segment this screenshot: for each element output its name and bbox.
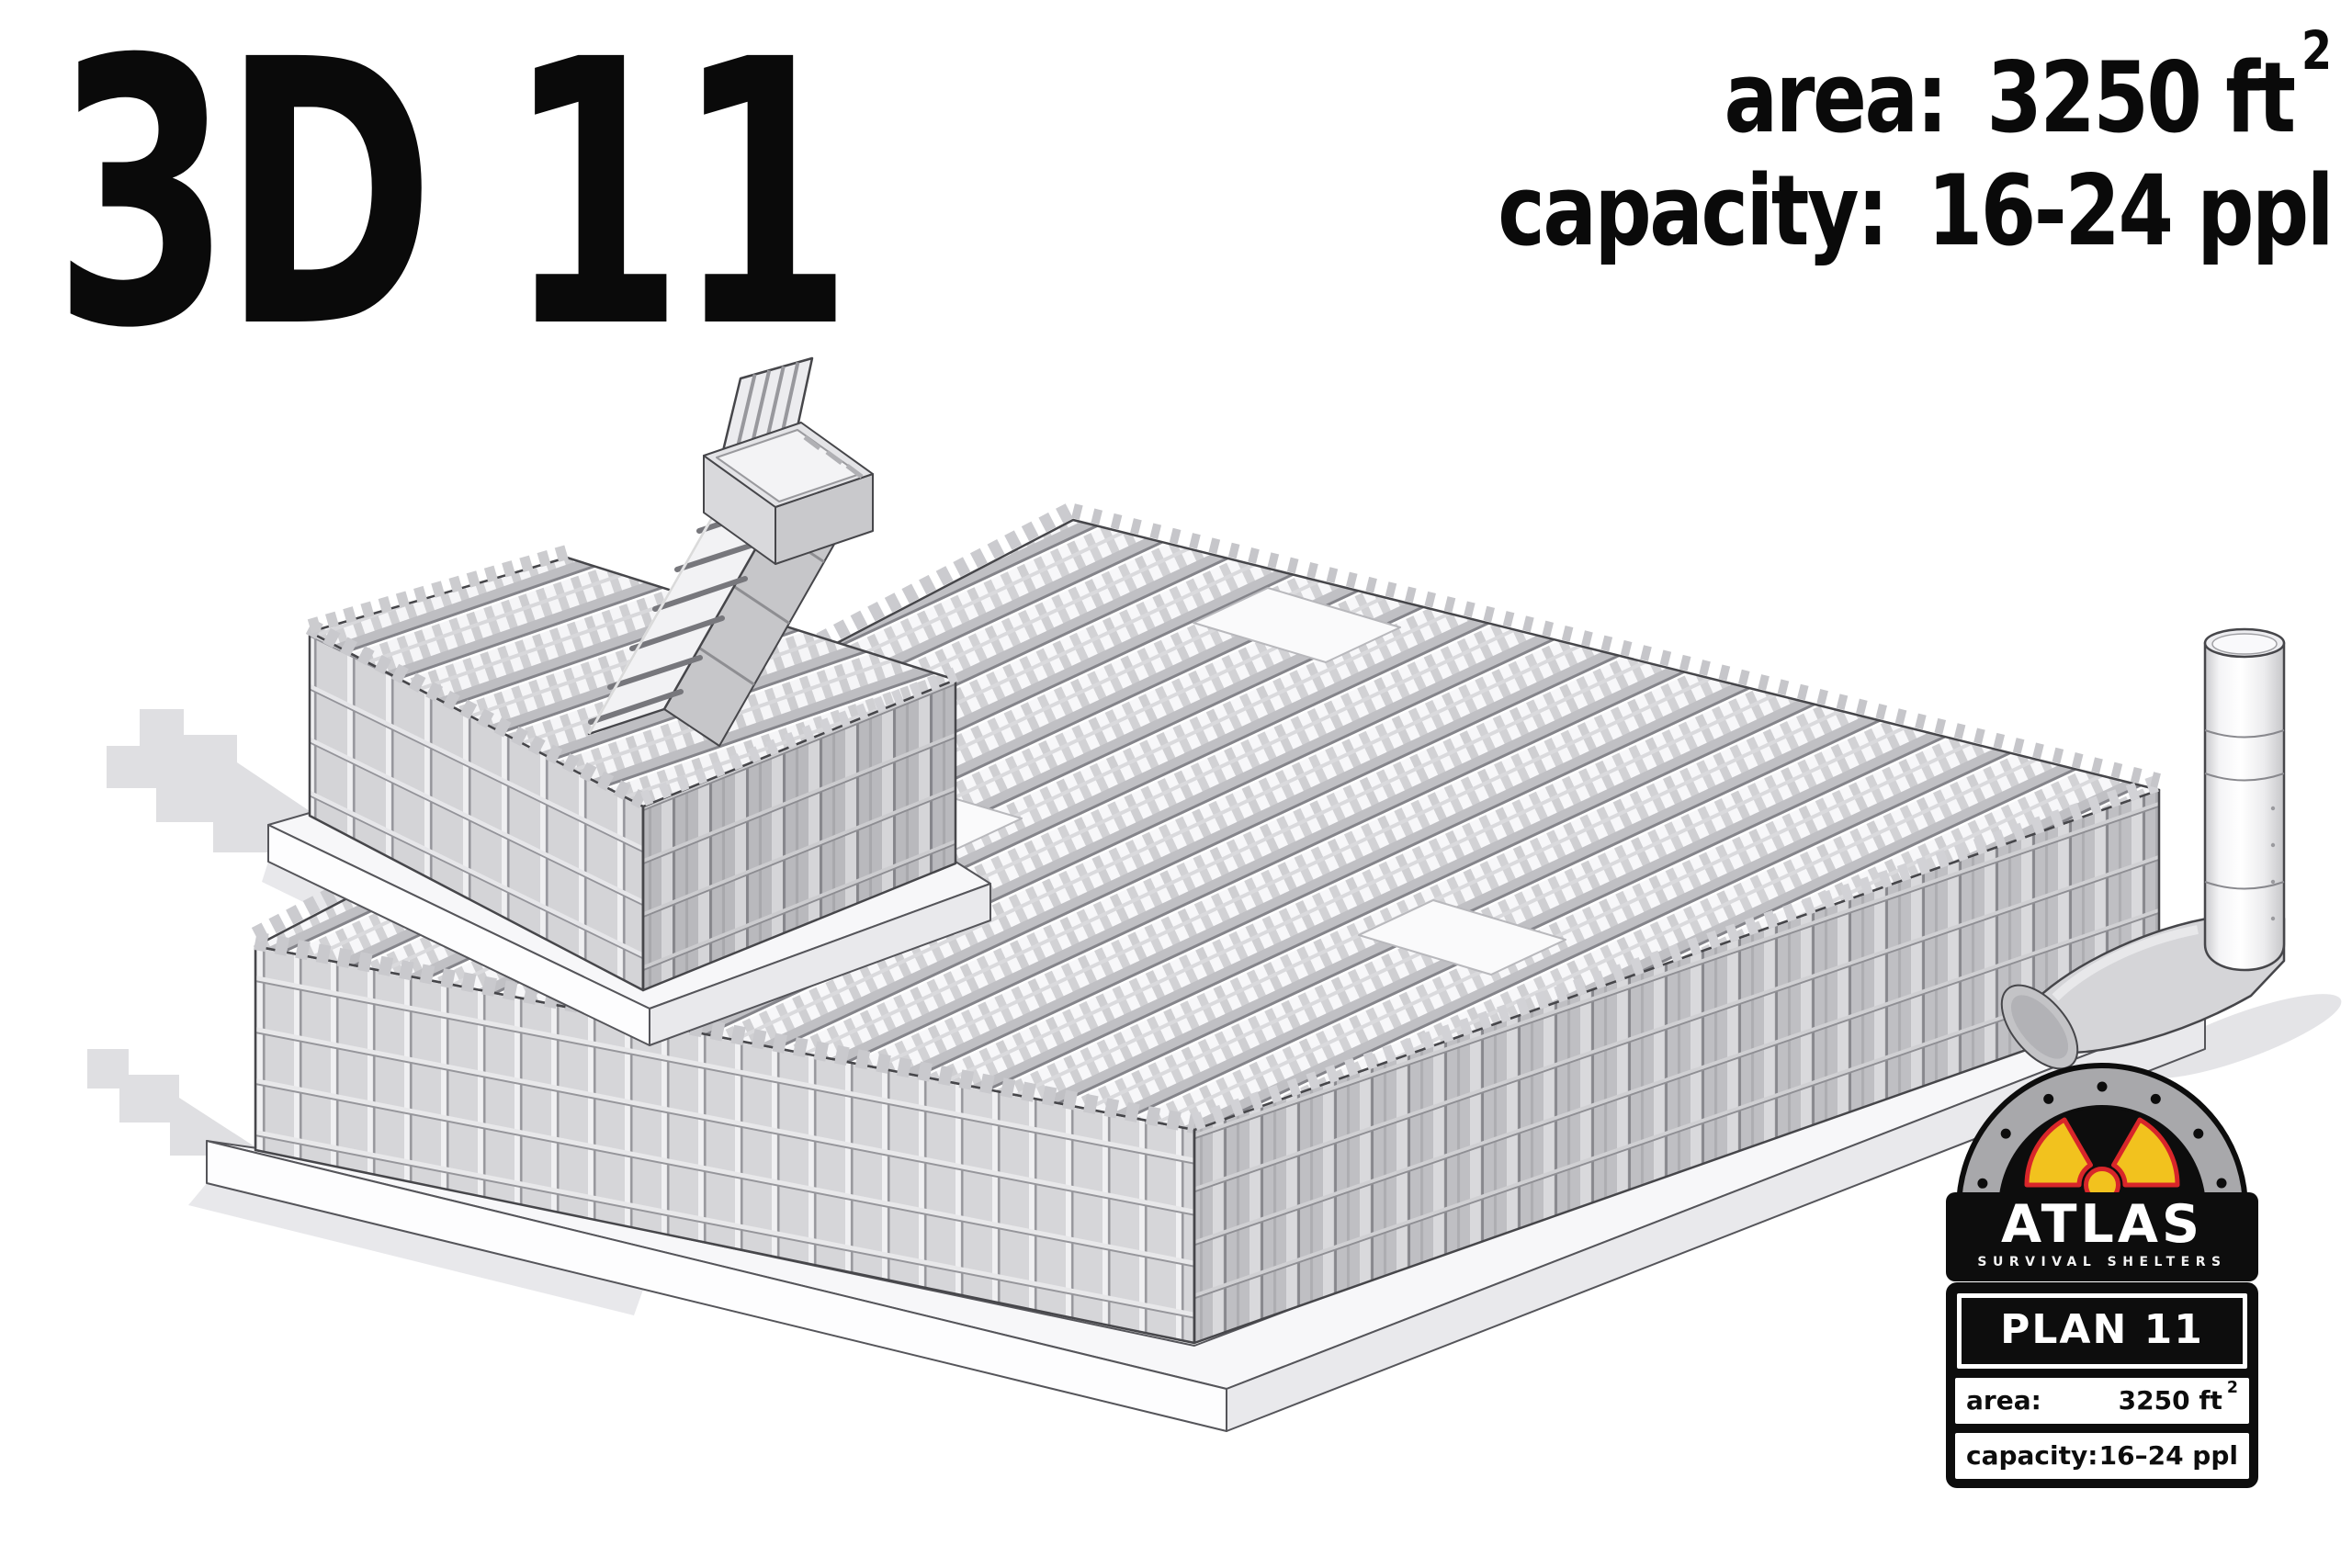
badge-area-row: area: 3250 ft2	[1955, 1378, 2249, 1424]
spec-capacity-label: capacity:	[1498, 154, 1886, 267]
atlas-badge: ATLAS SURVIVAL SHELTERS PLAN 11 area: 32…	[1946, 1062, 2258, 1499]
spec-lines: area:3250 ft2 capacity:16-24 ppl	[1498, 42, 2332, 268]
brand-tagline: SURVIVAL SHELTERS	[1946, 1255, 2258, 1269]
spec-capacity-line: capacity:16-24 ppl	[1498, 155, 2332, 268]
badge-plan-label: PLAN 11	[1957, 1293, 2247, 1369]
badge-plate: ATLAS SURVIVAL SHELTERS	[1946, 1192, 2258, 1281]
spec-area-label: area:	[1724, 41, 1946, 154]
spec-area-line: area:3250 ft2	[1498, 42, 2332, 155]
badge-capacity-label: capacity:	[1966, 1440, 2098, 1471]
badge-area-label: area:	[1966, 1385, 2041, 1416]
badge-capacity-row: capacity: 16–24 ppl	[1955, 1433, 2249, 1479]
page-title: 3D 11	[53, 13, 844, 378]
spec-capacity-value: 16-24 ppl	[1928, 154, 2332, 267]
badge-area-value: 3250 ft2	[2119, 1385, 2238, 1416]
brand-name: ATLAS	[1946, 1199, 2258, 1251]
badge-infobox: PLAN 11 area: 3250 ft2 capacity: 16–24 p…	[1946, 1282, 2258, 1488]
spec-area-value: 3250 ft	[1986, 41, 2293, 154]
badge-capacity-value: 16–24 ppl	[2099, 1440, 2238, 1471]
pipe-top-inner	[2212, 634, 2277, 654]
spec-area-sup: 2	[2301, 19, 2332, 82]
